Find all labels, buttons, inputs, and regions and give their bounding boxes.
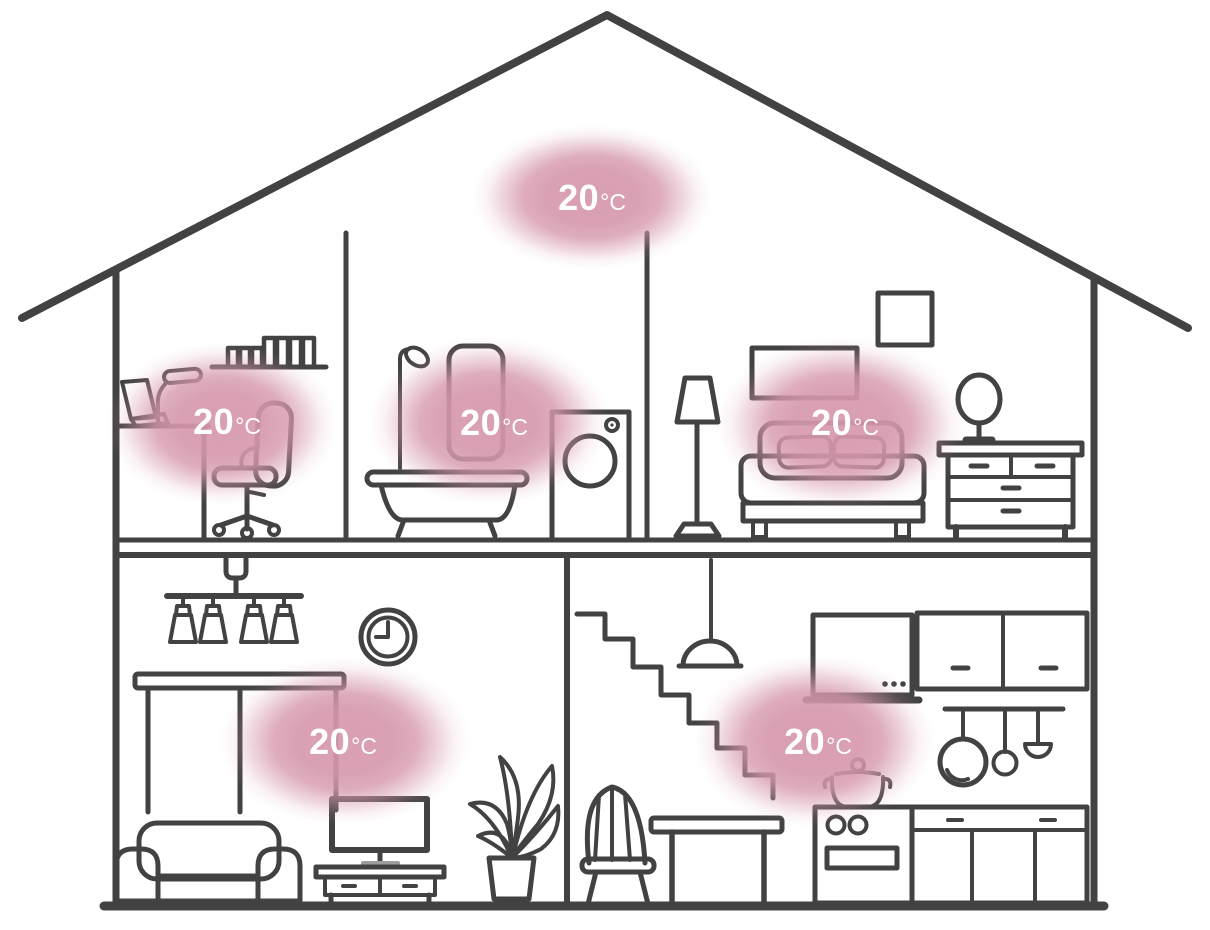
range-hood-icon (806, 615, 919, 700)
shower-pole (400, 349, 409, 468)
vanity-mirror-icon (958, 375, 1000, 440)
pendant-light-icon (679, 560, 741, 666)
tv-icon (332, 799, 427, 868)
house-line-art (0, 0, 1210, 930)
bathroom-room (367, 344, 629, 540)
books-icon (228, 338, 314, 367)
potted-plant-icon (470, 757, 558, 899)
console-table-icon (135, 674, 344, 812)
house-illustration: 20°C 20°C 20°C 20°C 20°C 20°C (0, 0, 1210, 930)
office-room (117, 338, 326, 540)
laptop-base (131, 414, 168, 426)
kitchen-table-icon (651, 818, 782, 904)
utensil-rail-icon (940, 709, 1063, 785)
desk-lamp-icon (164, 368, 202, 383)
kitchen-chair-icon (582, 787, 654, 904)
upper-cabinets-icon (917, 613, 1087, 689)
lower-cabinets-icon (912, 807, 1087, 903)
bedroom-room (741, 293, 1082, 539)
picture-frame-icon (752, 348, 857, 398)
stove-icon (815, 807, 912, 903)
shower-head-icon (403, 344, 432, 370)
office-chair-icon (214, 402, 292, 538)
kitchen-room (577, 560, 1087, 904)
washing-machine-icon (552, 412, 629, 540)
wall-clock-icon (361, 610, 415, 664)
laptop-icon (122, 380, 156, 419)
picture-frame-square-icon (878, 293, 932, 345)
ceiling-light-icon (167, 557, 301, 642)
shower-panel-icon (449, 346, 503, 459)
tv-stand-icon (316, 867, 444, 904)
dresser-icon (939, 443, 1082, 539)
living-room (116, 557, 558, 904)
bed-icon (741, 423, 924, 537)
bathtub-icon (367, 472, 527, 536)
roof-icon (22, 15, 1188, 328)
cooking-pot-icon (825, 759, 891, 807)
sofa-icon (116, 823, 300, 901)
floor-lamp-icon (676, 378, 719, 536)
stairs-icon (577, 614, 773, 798)
